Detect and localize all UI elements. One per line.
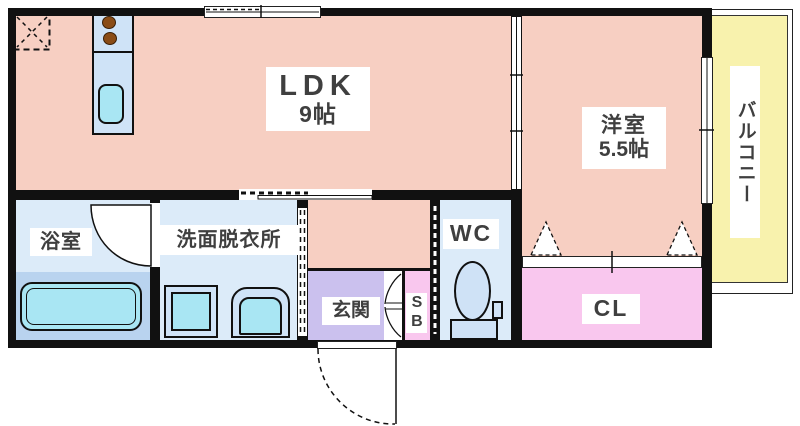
line-entrance-hall: [308, 268, 430, 271]
door-gap-bathroom: [150, 203, 160, 267]
wall-left: [8, 8, 16, 348]
stove-burner: [102, 16, 116, 29]
bathtub-inner-line: [26, 288, 136, 325]
entrance-name: 玄関: [332, 300, 370, 321]
wc-name: WC: [450, 221, 492, 247]
wall-top: [8, 8, 712, 16]
shoebox-door-area: [384, 271, 402, 340]
sliding-door-ldk-western: [512, 17, 521, 189]
hallway-floor: [308, 200, 430, 268]
vanity-basin: [239, 297, 282, 335]
washroom-name: 洗面脱衣所: [177, 229, 282, 251]
label-western-room: 洋室 5.5帖: [582, 107, 666, 169]
sliding-door-ldk-hall: [239, 189, 372, 200]
stove-burner: [103, 32, 117, 45]
toilet-tank: [450, 319, 498, 340]
floor-plan: LDK 9帖 洋室 5.5帖 バルコニー 浴室 洗面脱衣所 玄関 SB WC C…: [0, 0, 800, 426]
western-room-name: 洋室: [601, 114, 647, 138]
toilet-bowl: [454, 261, 491, 321]
western-room-size: 5.5帖: [599, 138, 649, 162]
label-shoebox: SB: [406, 293, 427, 333]
label-balcony: バルコニー: [730, 66, 760, 238]
label-ldk: LDK 9帖: [266, 67, 370, 131]
line-shoebox: [402, 271, 405, 340]
washing-machine: [171, 292, 211, 331]
label-entrance: 玄関: [322, 297, 380, 325]
window-ldk-top: [204, 6, 321, 18]
label-washroom: 洗面脱衣所: [160, 225, 298, 255]
bathroom-name: 浴室: [40, 231, 82, 253]
label-bathroom: 浴室: [30, 228, 92, 256]
kitchen-stove: [92, 12, 134, 53]
window-western-balcony: [701, 57, 713, 204]
bathtub: [20, 282, 142, 331]
toilet-flush-unit: [492, 301, 503, 319]
balcony-name: バルコニー: [734, 100, 755, 205]
kitchen-sink: [98, 84, 124, 124]
ldk-size: 9帖: [299, 102, 337, 128]
wall-hall-wc: [430, 200, 440, 340]
shoebox-name: SB: [408, 294, 426, 332]
closet-door-strip: [522, 256, 702, 268]
entrance-door-arc: [318, 349, 395, 424]
room-ldk-floor: [16, 16, 511, 190]
sliding-door-washroom: [298, 208, 307, 336]
label-closet: CL: [582, 294, 640, 324]
closet-name: CL: [594, 296, 629, 322]
ldk-name: LDK: [279, 70, 357, 102]
entrance-door-opening: [317, 341, 397, 349]
label-wc: WC: [443, 219, 499, 249]
